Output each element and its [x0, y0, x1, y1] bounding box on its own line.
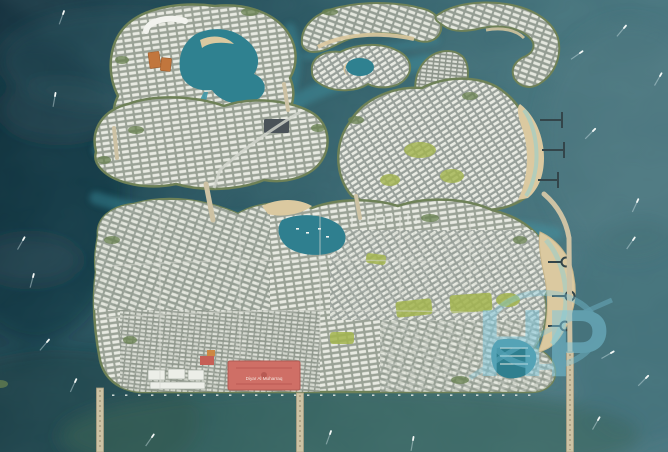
masterplan-aerial-render: Diyar Al Muharraq	[0, 0, 668, 452]
docked-boat	[268, 395, 270, 396]
docked-boat	[255, 395, 257, 396]
docked-boat	[411, 395, 413, 396]
watermark: HP	[470, 290, 612, 397]
retail-bigboxes	[148, 369, 205, 389]
docked-boat	[281, 395, 283, 396]
docked-boat	[242, 395, 244, 396]
docked-boat	[437, 395, 439, 396]
docked-boat	[294, 395, 296, 396]
docked-boat	[151, 395, 153, 396]
spiral-island	[312, 45, 410, 90]
docked-boat	[346, 395, 348, 396]
docked-boat	[177, 395, 179, 396]
midband-island	[95, 97, 328, 189]
mall-complex: Diyar Al Muharraq	[228, 361, 300, 390]
docked-boat	[125, 395, 127, 396]
docked-boat	[138, 395, 140, 396]
docked-boat	[450, 395, 452, 396]
docked-boat	[216, 395, 218, 396]
docked-boat	[463, 395, 465, 396]
docked-boat	[385, 395, 387, 396]
aerial-scene-svg: Diyar Al Muharraq	[0, 0, 668, 452]
docked-boat	[359, 395, 361, 396]
mall-roof-label: Diyar Al Muharraq	[246, 376, 283, 381]
causeway	[297, 393, 304, 452]
spiral-island-lagoon	[346, 58, 374, 76]
causeway	[97, 388, 104, 452]
docked-boat	[398, 395, 400, 396]
docked-boat	[190, 395, 192, 396]
docked-boat	[424, 395, 426, 396]
watermark-text: HP	[476, 290, 609, 397]
docked-boat	[203, 395, 205, 396]
midband-island-land	[95, 97, 328, 189]
docked-boat	[372, 395, 374, 396]
small-orange-building	[207, 350, 215, 356]
small-red-building	[200, 356, 214, 365]
docked-boat	[164, 395, 166, 396]
docked-boat	[307, 395, 309, 396]
docked-boat	[320, 395, 322, 396]
docked-boat	[333, 395, 335, 396]
docked-boat	[229, 395, 231, 396]
docked-boat	[112, 395, 114, 396]
